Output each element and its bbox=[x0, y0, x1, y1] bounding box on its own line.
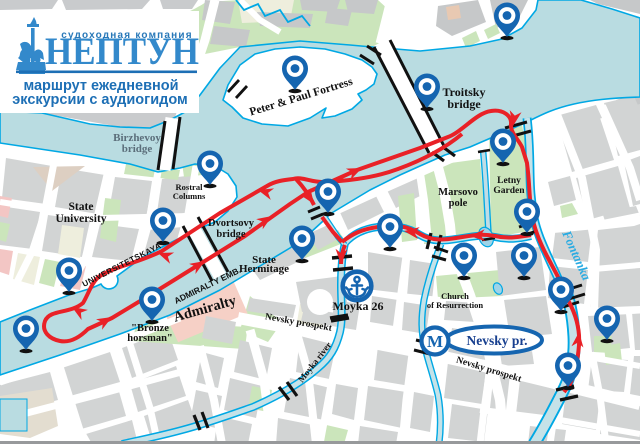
svg-text:Garden: Garden bbox=[493, 186, 525, 196]
svg-text:Nevsky pr.: Nevsky pr. bbox=[466, 333, 527, 348]
svg-text:Letny: Letny bbox=[497, 176, 521, 186]
svg-text:pole: pole bbox=[449, 198, 468, 209]
svg-text:Marsovo: Marsovo bbox=[438, 187, 478, 198]
svg-text:экскурсии с аудиогидом: экскурсии с аудиогидом bbox=[12, 92, 187, 108]
svg-text:horsman": horsman" bbox=[127, 333, 173, 344]
svg-text:НЕПТУН: НЕПТУН bbox=[45, 30, 199, 73]
svg-text:Dvortsovy: Dvortsovy bbox=[208, 218, 255, 229]
svg-text:M: M bbox=[427, 332, 443, 351]
svg-text:bridge: bridge bbox=[447, 97, 481, 111]
svg-text:of Resurrection: of Resurrection bbox=[427, 300, 484, 310]
svg-text:bridge: bridge bbox=[122, 143, 153, 155]
svg-text:State: State bbox=[69, 201, 94, 213]
svg-text:University: University bbox=[55, 213, 106, 225]
svg-text:Columns: Columns bbox=[173, 191, 206, 201]
svg-text:bridge: bridge bbox=[216, 229, 246, 240]
svg-text:Hermitage: Hermitage bbox=[239, 263, 289, 275]
svg-text:Moyka 26: Moyka 26 bbox=[333, 299, 384, 313]
